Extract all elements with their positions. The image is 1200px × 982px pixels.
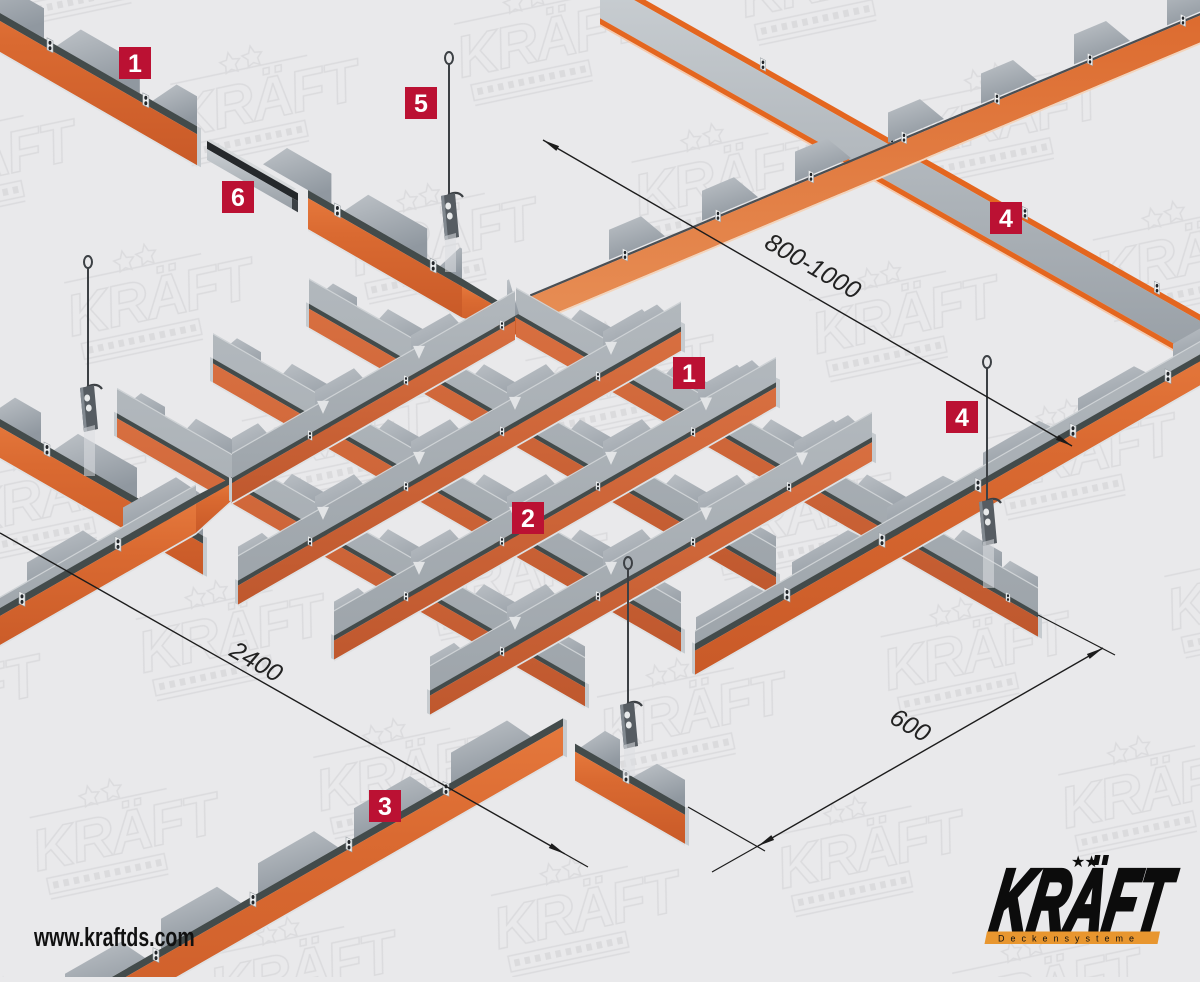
svg-text:3: 3: [378, 793, 392, 821]
svg-text:Deckensysteme: Deckensysteme: [998, 934, 1140, 944]
svg-text:5: 5: [414, 90, 428, 118]
svg-text:2: 2: [521, 505, 535, 533]
svg-text:www.kraftds.com: www.kraftds.com: [33, 922, 194, 951]
svg-text:1: 1: [682, 360, 696, 388]
svg-text:1: 1: [128, 50, 142, 78]
svg-text:4: 4: [955, 404, 969, 432]
svg-text:6: 6: [231, 184, 245, 212]
svg-text:4: 4: [999, 205, 1013, 233]
